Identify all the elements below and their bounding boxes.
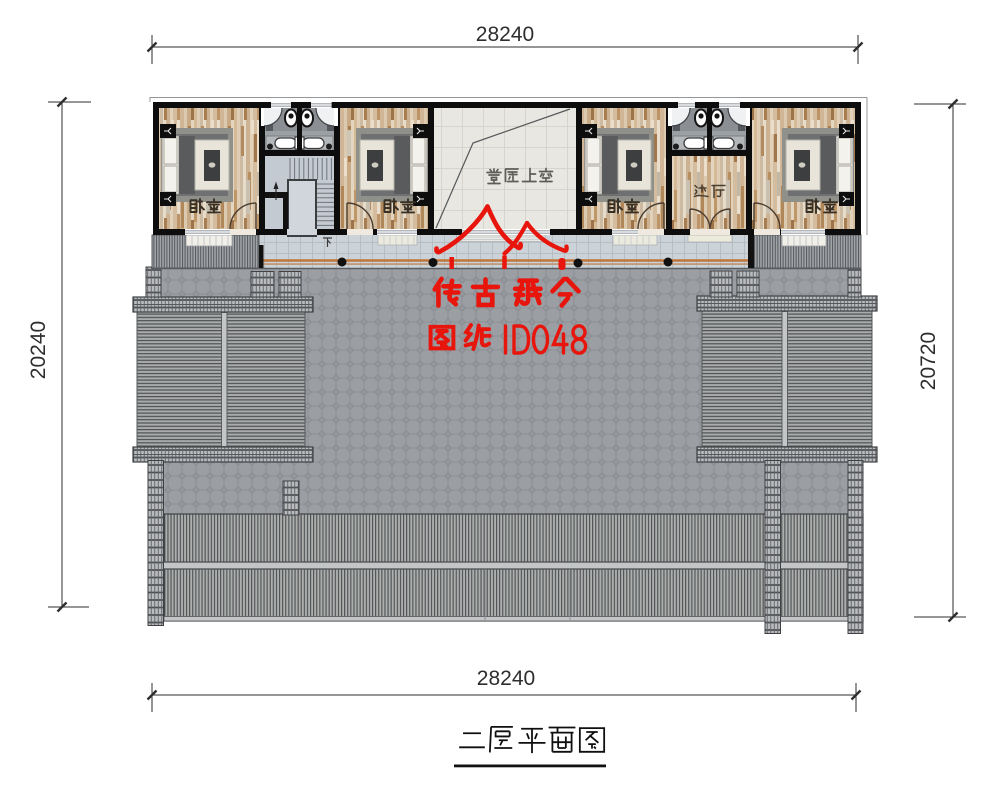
svg-text:28240: 28240 <box>476 23 534 46</box>
svg-text:20720: 20720 <box>917 332 940 390</box>
svg-text:20240: 20240 <box>27 321 50 379</box>
svg-text:28240: 28240 <box>477 667 535 690</box>
